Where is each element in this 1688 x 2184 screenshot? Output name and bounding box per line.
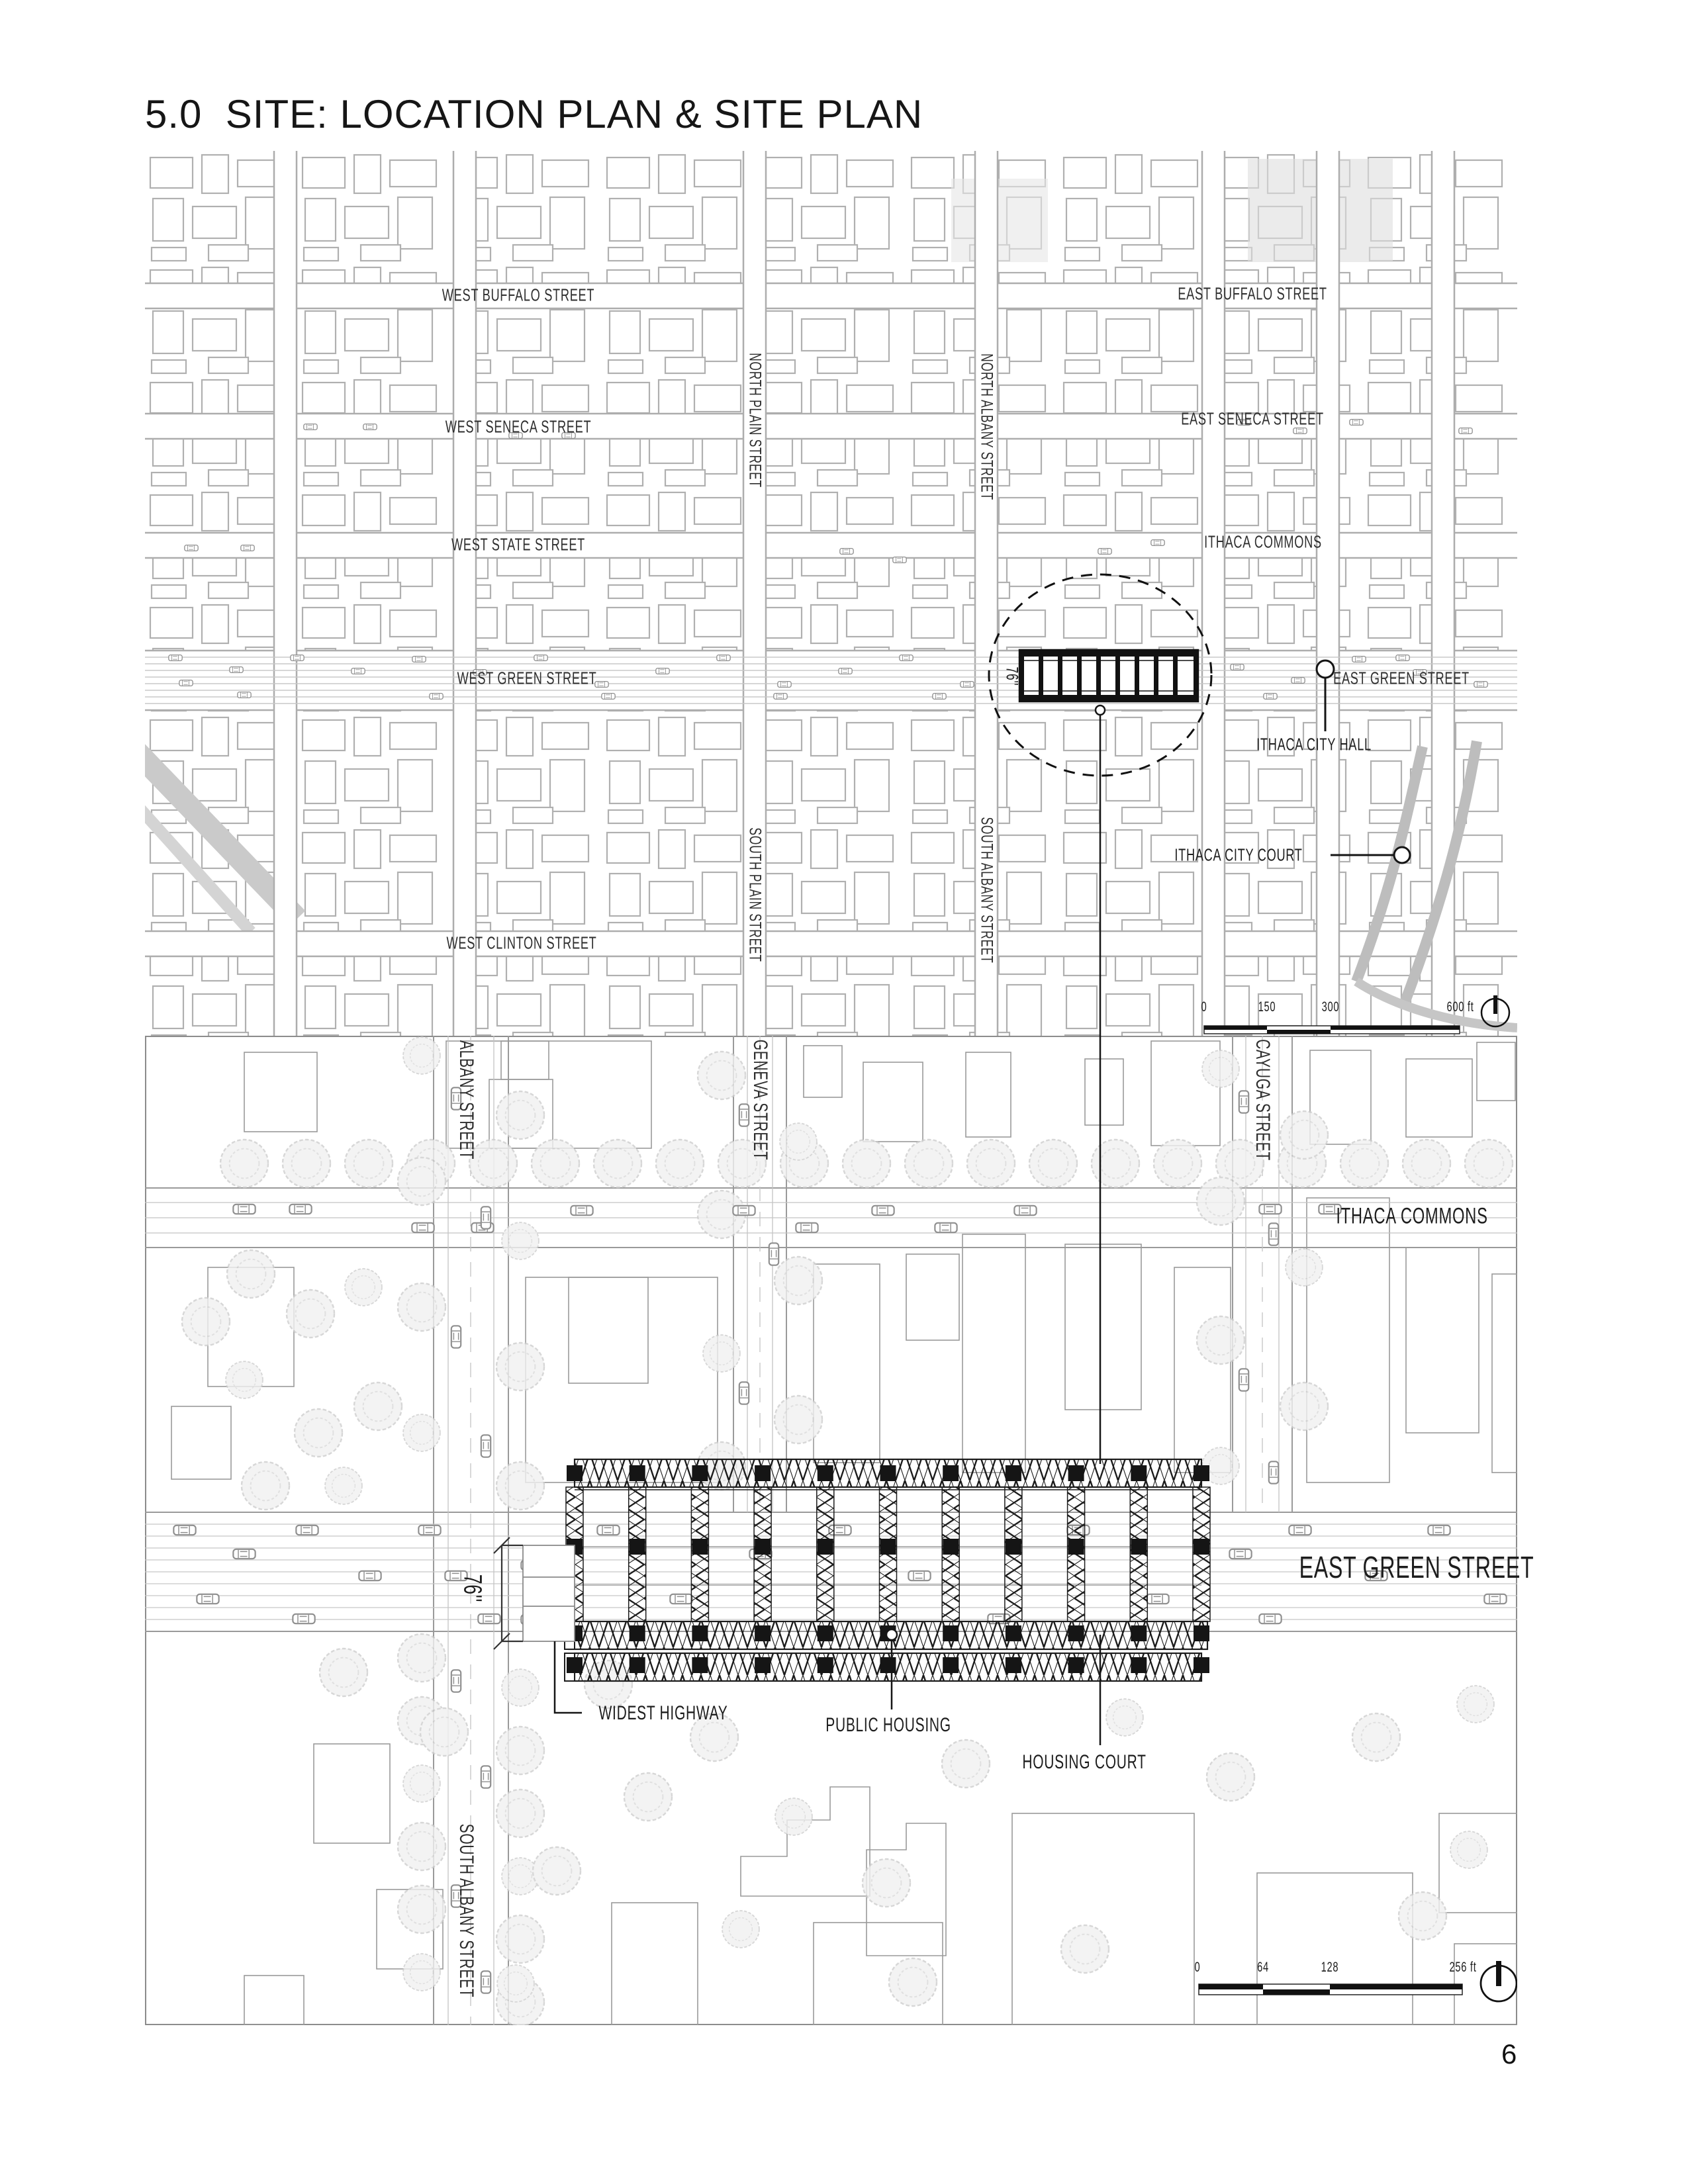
street-label-west-seneca: WEST SENECA STREET (445, 417, 592, 437)
tree-icon (1457, 1686, 1494, 1723)
tree-icon (502, 1858, 539, 1895)
car-icon (900, 655, 913, 661)
tree-icon (403, 1765, 440, 1802)
street-label-west-clinton: WEST CLINTON STREET (446, 933, 596, 954)
tree-icon (1465, 1140, 1513, 1187)
car-icon (481, 1766, 491, 1788)
car-icon (352, 668, 365, 674)
tree-icon (220, 1140, 268, 1187)
tree-icon (502, 1222, 539, 1259)
annotation-public-housing: PUBLIC HOUSING (825, 1714, 951, 1737)
car-icon (418, 1525, 440, 1535)
car-icon (1428, 1525, 1450, 1535)
tree-icon (227, 1250, 275, 1298)
tree-icon (1280, 1383, 1328, 1430)
tree-icon (345, 1140, 393, 1187)
car-icon (1014, 1206, 1036, 1215)
street-label-north-plain: NORTH PLAIN STREET (745, 353, 765, 488)
tree-icon (295, 1409, 342, 1457)
tree-icon (398, 1283, 445, 1331)
tree-icon (905, 1140, 953, 1187)
car-icon (1229, 1549, 1251, 1559)
tree-icon (1197, 1316, 1244, 1364)
tree-icon (698, 1052, 745, 1099)
tree-icon (703, 1335, 740, 1372)
tree-icon (354, 1383, 402, 1430)
car-icon (289, 1205, 311, 1214)
tree-icon (403, 1954, 440, 1991)
car-icon (412, 657, 426, 662)
street-label-west-state: WEST STATE STREET (451, 535, 585, 555)
scale-tick-256: 256 ft (1450, 1960, 1477, 1976)
tree-icon (774, 1396, 822, 1443)
car-icon (481, 1206, 491, 1228)
car-icon (1474, 682, 1487, 688)
tree-icon (780, 1123, 817, 1160)
car-icon (839, 668, 852, 674)
tree-icon (398, 1823, 445, 1870)
car-icon (796, 1223, 818, 1232)
tree-icon (1280, 1111, 1328, 1159)
tree-icon (502, 1669, 539, 1706)
tree-icon (1029, 1140, 1077, 1187)
tree-icon (863, 1859, 910, 1907)
tree-icon (242, 1462, 289, 1510)
tree-icon (1399, 1892, 1446, 1940)
car-icon (185, 545, 198, 551)
tree-icon (775, 1798, 812, 1835)
car-icon (451, 1670, 461, 1692)
car-icon (571, 1206, 592, 1215)
tree-icon (403, 1037, 440, 1074)
car-icon (961, 682, 974, 688)
car-icon (1269, 1223, 1278, 1245)
car-icon (769, 1243, 778, 1265)
car-icon (173, 1525, 195, 1535)
car-icon (739, 1382, 749, 1404)
tree-icon (1286, 1249, 1323, 1286)
scale-tick-64: 64 (1257, 1960, 1269, 1976)
dimension-label-76: 76'' (1002, 667, 1021, 686)
car-icon (908, 1571, 930, 1580)
car-icon (1259, 1614, 1281, 1623)
tree-icon (1106, 1699, 1143, 1736)
tree-icon (1061, 1925, 1109, 1973)
scale-bar (1199, 1984, 1462, 1995)
car-icon (933, 694, 946, 700)
tree-icon (398, 1886, 445, 1933)
tree-icon (967, 1140, 1015, 1187)
annotation-widest-highway: WIDEST HIGHWAY (599, 1702, 728, 1725)
car-icon (733, 1206, 755, 1215)
tree-icon (345, 1269, 382, 1306)
tree-icon (325, 1467, 362, 1504)
car-icon (233, 1549, 255, 1559)
tree-icon (942, 1740, 990, 1788)
street-label-east-buffalo: EAST BUFFALO STREET (1178, 284, 1327, 304)
car-icon (534, 655, 547, 661)
car-icon (481, 1971, 491, 1993)
page-title: 5.0 SITE: LOCATION PLAN & SITE PLAN (145, 91, 923, 137)
scale-tick-300: 300 (1322, 999, 1340, 1015)
car-icon (840, 549, 853, 555)
car-icon (1289, 1525, 1311, 1535)
car-icon (1239, 1369, 1248, 1390)
car-icon (241, 545, 254, 551)
parking-pocket (523, 1545, 575, 1641)
tree-icon (287, 1290, 334, 1338)
tree-icon (722, 1911, 759, 1948)
landmark-label-city-court: ITHACA CITY COURT (1174, 845, 1302, 866)
tree-icon (403, 1414, 440, 1451)
tree-icon (497, 1965, 534, 2002)
car-icon (872, 1206, 894, 1215)
tree-icon (496, 1727, 544, 1774)
street-label-east-green: EAST GREEN STREET (1299, 1549, 1534, 1585)
car-icon (430, 694, 443, 700)
site-structure-mini (1019, 650, 1198, 702)
tree-icon (182, 1298, 230, 1345)
tree-icon (1352, 1713, 1400, 1761)
car-icon (670, 1594, 692, 1604)
car-icon (233, 1205, 255, 1214)
car-icon (1396, 655, 1409, 661)
street-label-east-seneca: EAST SENECA STREET (1181, 409, 1324, 430)
car-icon (1259, 1205, 1281, 1214)
tree-icon (1340, 1140, 1388, 1187)
car-icon (935, 1223, 957, 1232)
car-icon (304, 424, 317, 430)
tree-icon (1450, 1831, 1487, 1868)
tree-icon (1403, 1140, 1450, 1187)
street-label-geneva: GENEVA STREET (749, 1040, 771, 1161)
tree-icon (843, 1140, 890, 1187)
tree-icon (594, 1140, 641, 1187)
car-icon (179, 680, 193, 686)
scale-tick-0: 0 (1201, 999, 1207, 1015)
tree-icon (1202, 1050, 1239, 1087)
car-icon (230, 667, 243, 673)
tree-icon (496, 1915, 544, 1963)
car-icon (1352, 657, 1366, 662)
car-icon (1147, 1594, 1168, 1604)
car-icon (597, 1525, 619, 1535)
car-icon (1231, 664, 1244, 670)
tree-icon (1154, 1140, 1201, 1187)
car-icon (739, 1104, 749, 1126)
car-icon (893, 557, 906, 563)
street-label-west-green: WEST GREEN STREET (457, 668, 597, 689)
scale-tick-0: 0 (1195, 1960, 1201, 1976)
car-icon (197, 1594, 218, 1604)
portfolio-page: 5.0 SITE: LOCATION PLAN & SITE PLAN (0, 0, 1688, 2184)
street-label-west-buffalo: WEST BUFFALO STREET (442, 285, 594, 306)
scale-tick-600: 600 ft (1447, 999, 1474, 1015)
car-icon (1098, 549, 1111, 555)
street-label-ithaca-commons: ITHACA COMMONS (1336, 1204, 1487, 1230)
car-icon (359, 1571, 381, 1580)
car-icon (293, 1614, 314, 1623)
tree-icon (398, 1158, 445, 1205)
car-icon (1269, 1461, 1278, 1483)
car-icon (169, 655, 182, 661)
street-label-north-albany: NORTH ALBANY STREET (977, 353, 996, 500)
car-icon (481, 1435, 491, 1457)
tree-icon (226, 1361, 263, 1398)
street-label-albany: ALBANY STREET (455, 1040, 477, 1160)
car-icon (1350, 420, 1363, 426)
car-icon (291, 655, 304, 661)
scale-tick-150: 150 (1258, 999, 1276, 1015)
car-icon (1291, 678, 1305, 684)
car-icon (1459, 428, 1472, 434)
street-label-south-albany: SOUTH ALBANY STREET (977, 817, 996, 963)
tree-icon (496, 1343, 544, 1390)
tree-icon (1092, 1140, 1139, 1187)
street-label-ithaca-commons: ITHACA COMMONS (1204, 532, 1322, 553)
car-icon (363, 424, 377, 430)
page-number: 6 (1501, 2038, 1517, 2070)
car-icon (296, 1525, 318, 1535)
car-icon (478, 1614, 500, 1623)
tree-icon (496, 1091, 544, 1139)
tree-icon (496, 1462, 544, 1510)
tree-icon (398, 1634, 445, 1682)
tree-icon (624, 1773, 672, 1821)
car-icon (238, 692, 251, 698)
tree-icon (420, 1708, 468, 1756)
tree-icon (774, 1257, 822, 1304)
car-icon (602, 694, 615, 700)
car-icon (1151, 540, 1164, 546)
car-icon (656, 668, 669, 674)
tree-icon (1207, 1753, 1254, 1801)
car-icon (778, 682, 791, 688)
landmark-label-city-hall: ITHACA CITY HALL (1256, 735, 1372, 755)
car-icon (717, 655, 730, 661)
car-icon (774, 694, 787, 700)
tree-icon (320, 1649, 367, 1696)
tree-icon (889, 1958, 937, 2006)
tree-icon (496, 1790, 544, 1837)
street-label-east-green: EAST GREEN STREET (1333, 668, 1470, 689)
site-plan-graphics (145, 1036, 1517, 2025)
car-icon (1264, 694, 1277, 700)
scale-tick-128: 128 (1321, 1960, 1339, 1976)
tree-icon (656, 1140, 704, 1187)
car-icon (451, 1326, 461, 1347)
car-icon (412, 1223, 434, 1232)
location-plan: WEST BUFFALO STREET EAST BUFFALO STREET … (145, 151, 1517, 1036)
tree-icon (283, 1140, 330, 1187)
street-label-south-albany: SOUTH ALBANY STREET (455, 1824, 477, 1998)
annotation-housing-court: HOUSING COURT (1022, 1751, 1146, 1774)
site-plan: ALBANY STREET GENEVA STREET CAYUGA STREE… (145, 1036, 1517, 2025)
scale-bar (1204, 1026, 1460, 1034)
car-icon (595, 682, 608, 688)
dimension-label-76: 76'' (458, 1574, 487, 1603)
tree-icon (1197, 1177, 1244, 1225)
street-label-south-plain: SOUTH PLAIN STREET (745, 827, 765, 962)
car-icon (1239, 1091, 1248, 1113)
tree-icon (533, 1847, 581, 1895)
tree-icon (532, 1140, 579, 1187)
car-icon (1484, 1594, 1506, 1604)
street-label-cayuga: CAYUGA STREET (1251, 1039, 1274, 1161)
